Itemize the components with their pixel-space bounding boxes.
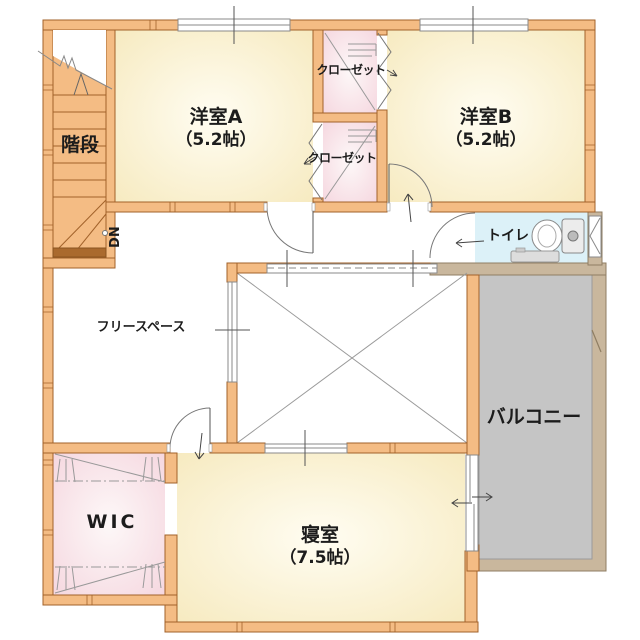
toilet-bottom-wall xyxy=(430,263,606,275)
toilet-counter xyxy=(511,251,559,262)
floor-plan-drawing xyxy=(0,0,640,640)
floor-plan: 階段 DN 洋室A （5.2帖） 洋室B （5.2帖） クローゼット クローゼッ… xyxy=(0,0,640,640)
room-a-floor xyxy=(115,30,313,202)
wic-floor xyxy=(53,453,165,595)
bedroom-floor xyxy=(177,453,465,622)
door-jambs xyxy=(167,203,431,452)
balcony-floor xyxy=(479,275,592,559)
balcony-structure xyxy=(467,263,606,571)
void-area xyxy=(237,273,467,443)
room-b-floor xyxy=(387,30,585,202)
door-pivot xyxy=(103,231,108,236)
